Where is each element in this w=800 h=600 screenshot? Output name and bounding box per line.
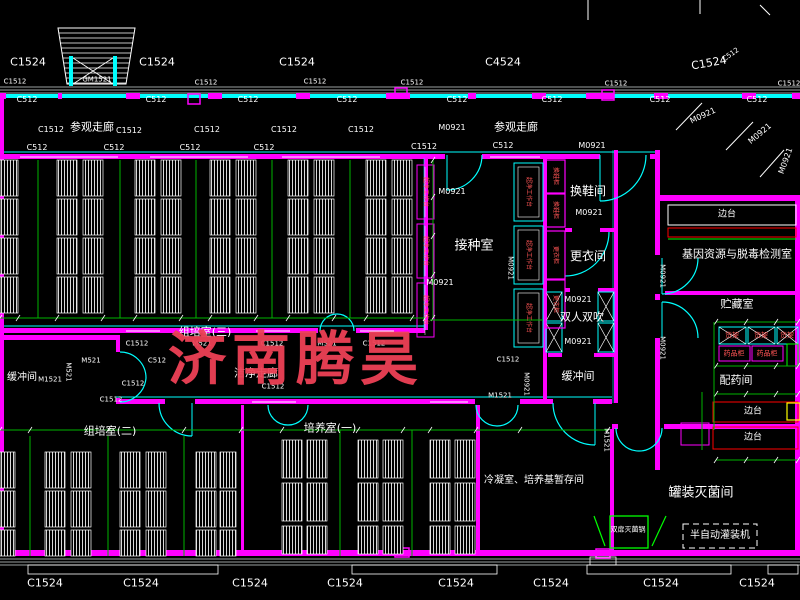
cad-floorplan: C1524C1524C1524C4524C1524C512GM1521C1512…	[0, 0, 800, 600]
racks-layer	[0, 160, 475, 556]
floorplan-drawing	[0, 0, 800, 600]
